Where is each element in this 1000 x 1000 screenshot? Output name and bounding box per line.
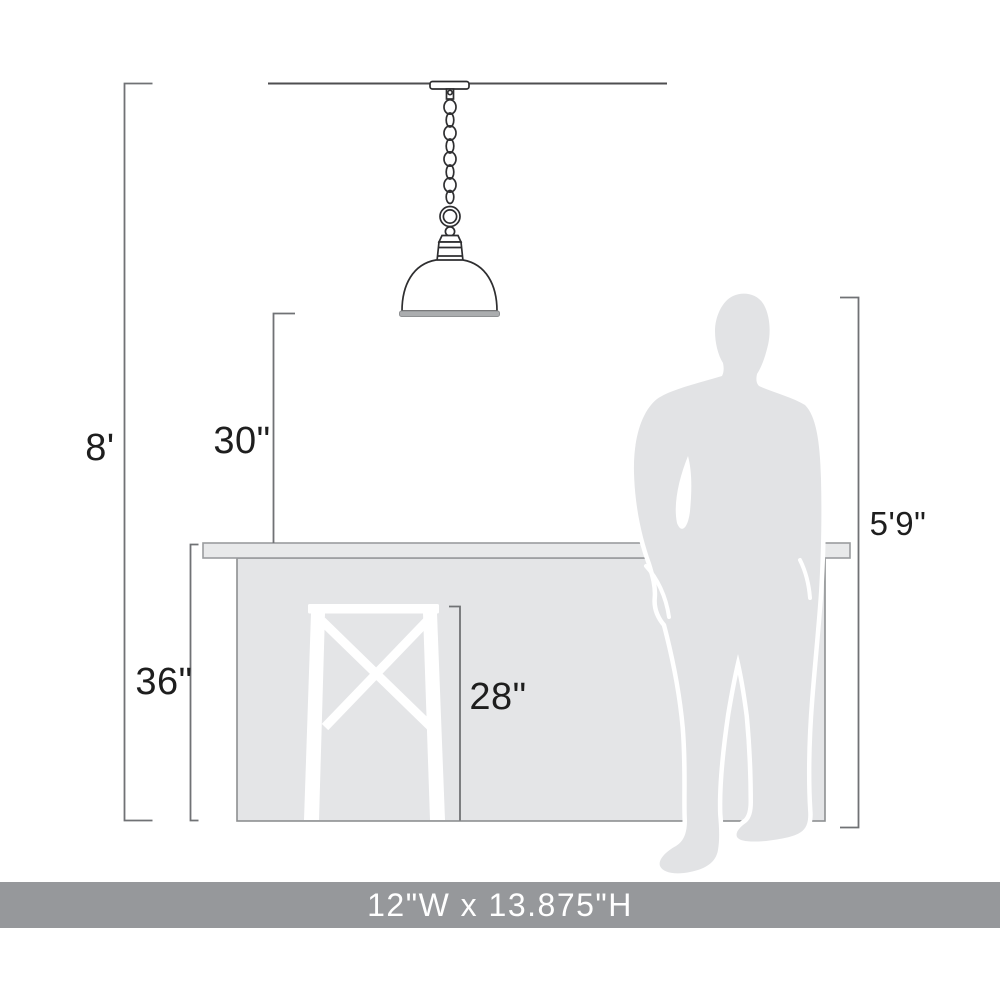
ceiling-height-label: 8' [70, 428, 130, 468]
chain-loop-ring [440, 207, 460, 227]
socket-holder [437, 227, 463, 261]
dome-shade [400, 260, 500, 317]
diagram-canvas [0, 0, 1000, 1000]
hanging-chain [444, 100, 456, 204]
counter-height-label: 36" [124, 662, 204, 702]
ceiling-canopy [430, 82, 469, 100]
stool-height-label: 28" [458, 677, 538, 717]
size-banner: 12"W x 13.875"H [0, 882, 1000, 928]
product-size-label: 12"W x 13.875"H [367, 887, 633, 924]
shade-bottom-rim [400, 311, 500, 317]
stool-seat [308, 604, 439, 614]
pendant-light [400, 82, 500, 317]
pendant-clearance-label: 30" [202, 421, 282, 461]
product-dimension-diagram: 8' 30" 36" 28" 5'9" 12"W x 13.875"H [0, 0, 1000, 1000]
dimension-bracket-5ft9 [840, 298, 859, 828]
person-height-label: 5'9" [853, 506, 943, 542]
